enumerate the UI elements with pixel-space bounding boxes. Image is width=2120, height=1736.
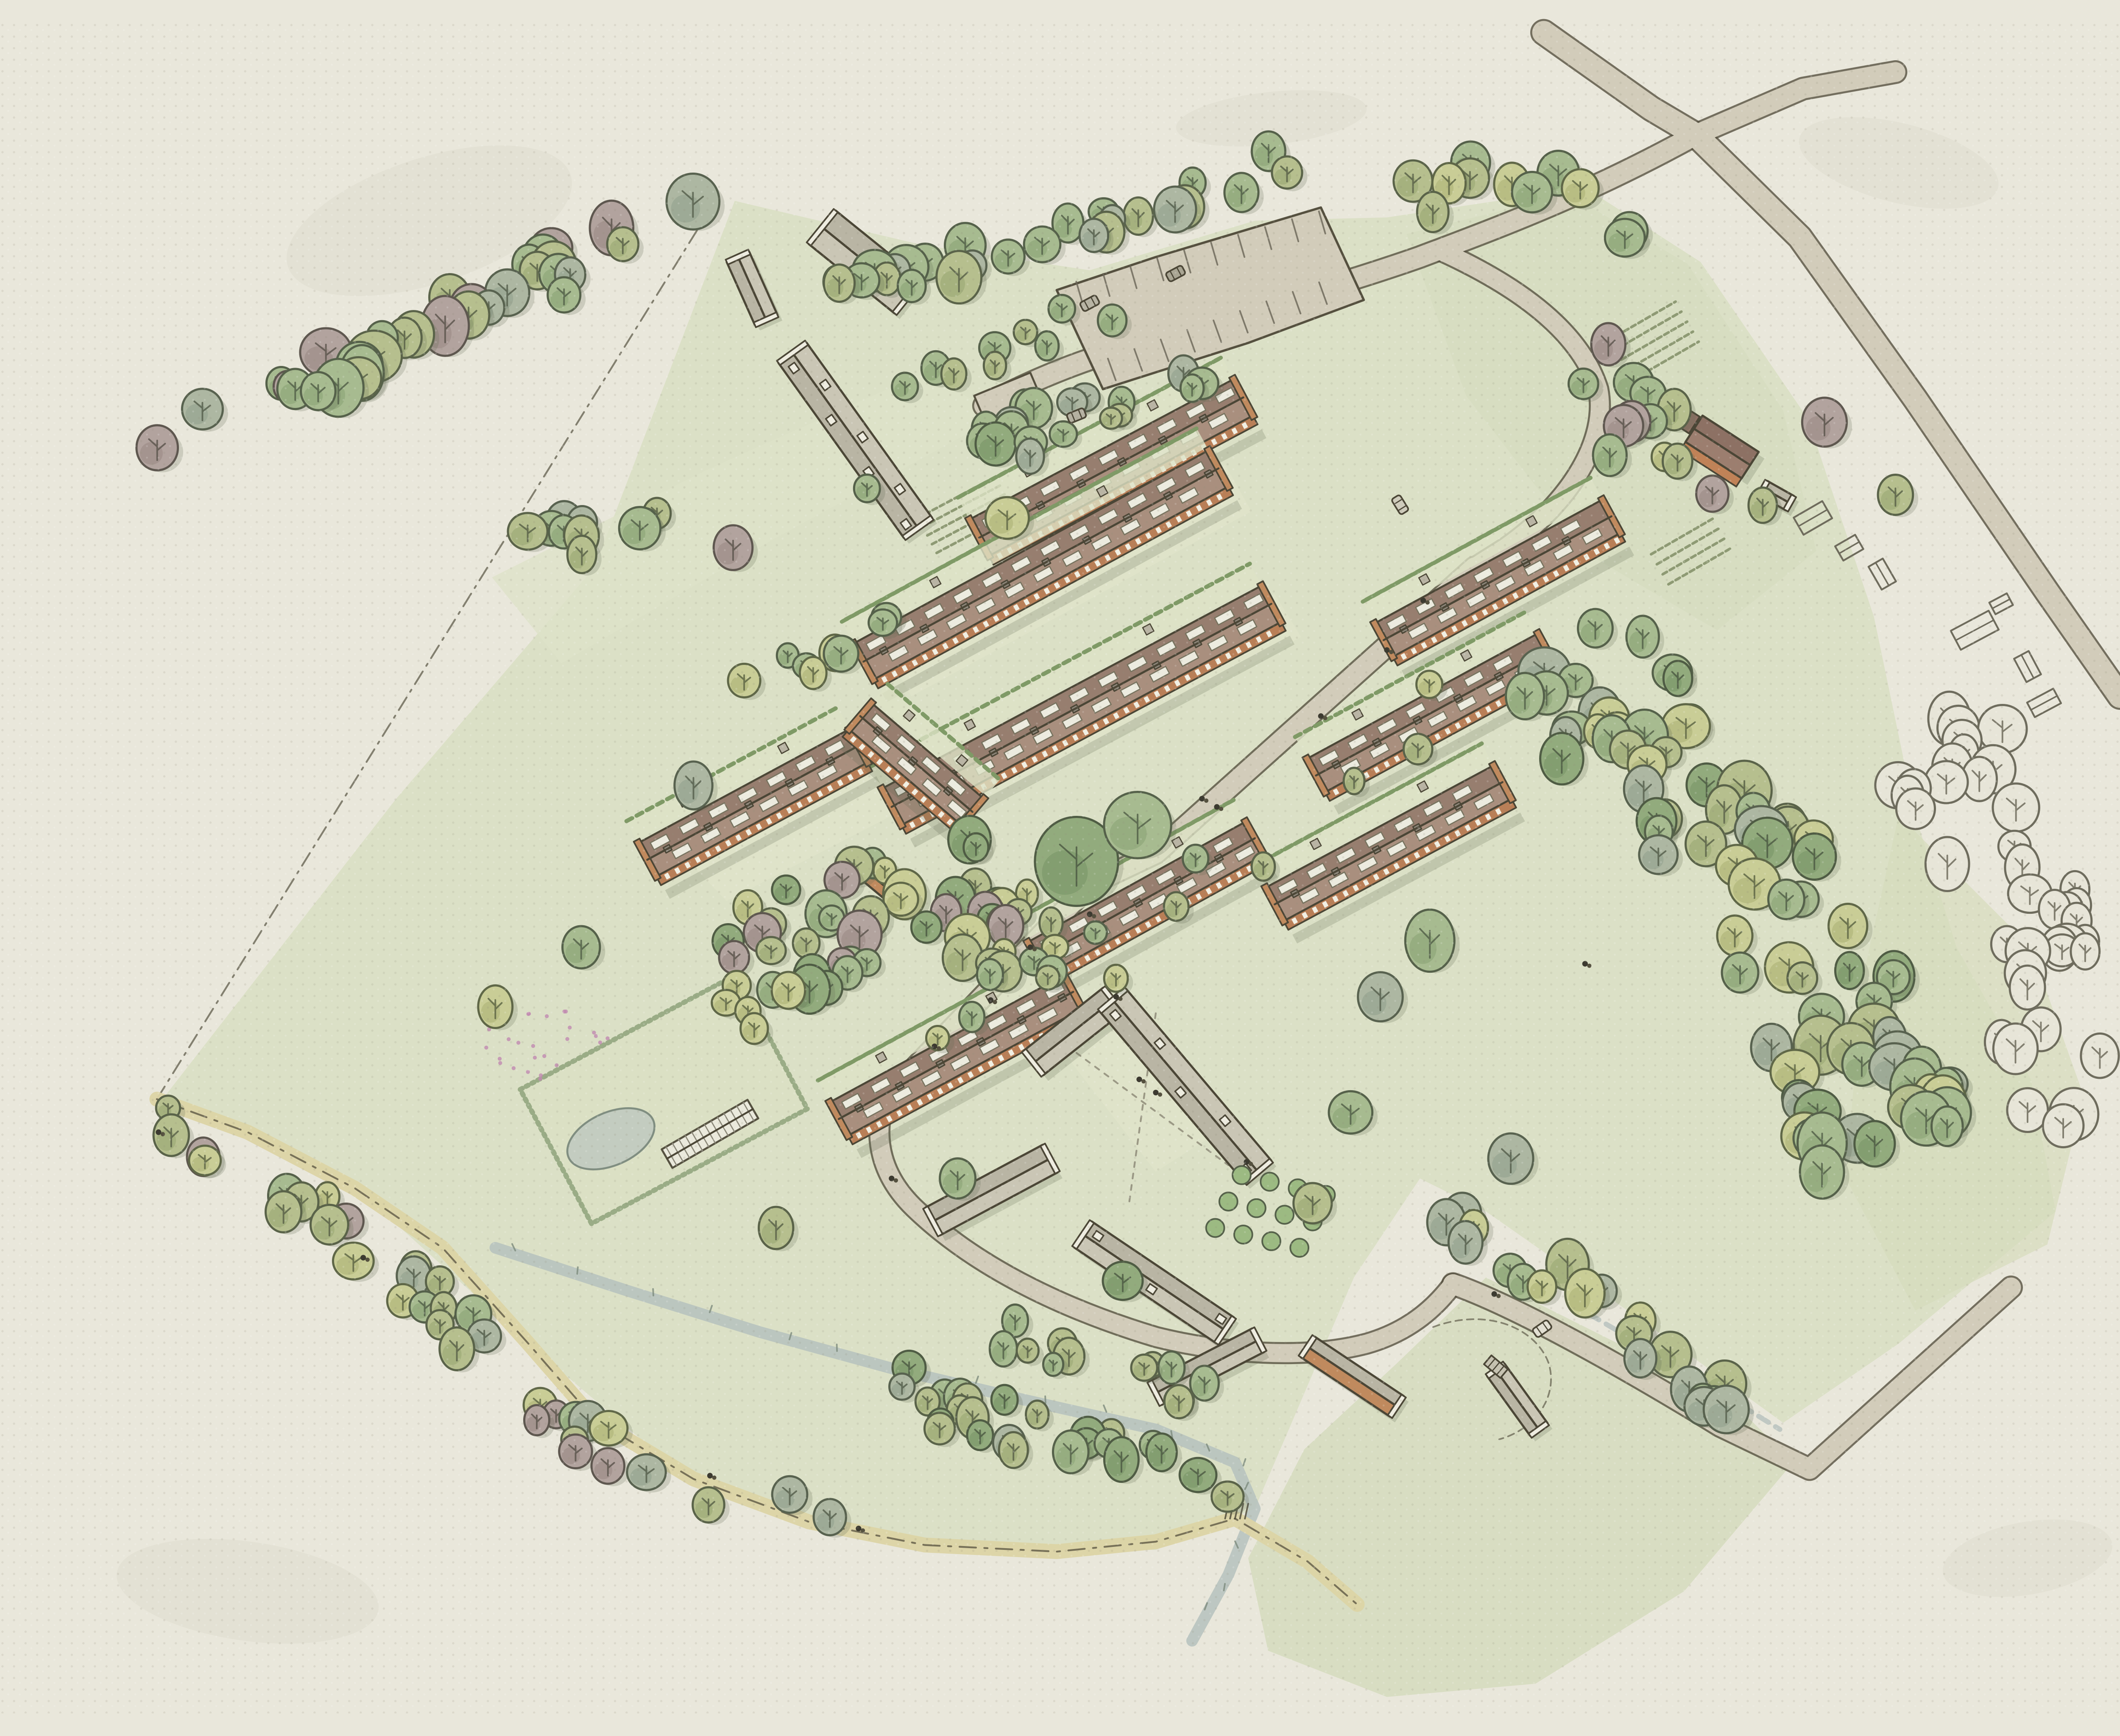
tree-canopy-shade xyxy=(856,485,870,499)
tree-canopy-shade xyxy=(1544,752,1568,778)
tree-canopy-shade xyxy=(918,1398,931,1412)
person-dot xyxy=(1492,1291,1497,1297)
outline-tree xyxy=(1993,784,2039,832)
tree-canopy-shade xyxy=(1254,863,1266,877)
tree-canopy-shade xyxy=(1086,930,1098,941)
tree-canopy-shade xyxy=(550,290,568,308)
tree-canopy-shade xyxy=(821,915,835,927)
tree-canopy-shade xyxy=(816,1513,834,1531)
tree-canopy-shade xyxy=(802,669,817,685)
tree-canopy-shade xyxy=(1018,452,1034,469)
flower-dot xyxy=(498,1057,502,1061)
tree-canopy-shade xyxy=(570,550,586,568)
tree-canopy-shade xyxy=(722,953,738,969)
orchard-tree xyxy=(1261,1172,1279,1191)
person-dot xyxy=(1136,1077,1142,1082)
tree-canopy-shade xyxy=(630,1468,652,1485)
tree-canopy-shade xyxy=(337,1256,359,1275)
tree-canopy-shade xyxy=(995,252,1013,269)
tree-canopy-shade xyxy=(1183,385,1195,398)
tree-canopy-shade xyxy=(979,438,1001,460)
tree-canopy-shade xyxy=(1106,1276,1128,1295)
tree-canopy-shade xyxy=(1806,416,1830,441)
person-dot xyxy=(1214,804,1219,809)
tree-canopy-shade xyxy=(717,542,738,564)
flower-dot xyxy=(531,1044,535,1048)
orchard-tree xyxy=(1247,1199,1266,1217)
tree-canopy-shade xyxy=(1804,1165,1828,1192)
tree-canopy-shade xyxy=(140,442,163,465)
tree-canopy-shade xyxy=(1581,623,1600,642)
flower-dot xyxy=(545,1014,549,1018)
person-dot xyxy=(856,1526,861,1531)
tree-canopy-shade xyxy=(1397,176,1418,197)
tree-canopy-shade xyxy=(186,404,208,424)
tree-canopy-shade xyxy=(1158,204,1181,227)
tree-canopy-shade xyxy=(914,923,930,939)
tree-canopy-shade xyxy=(1297,1198,1318,1219)
tree-canopy-shade xyxy=(961,1013,975,1028)
tree-canopy-shade xyxy=(1751,501,1767,519)
tree-canopy-shade xyxy=(1643,850,1664,869)
tree-canopy-shade xyxy=(1160,1364,1175,1380)
tree-canopy-shade xyxy=(1183,1471,1203,1488)
flower-dot xyxy=(568,1026,572,1030)
tree-canopy-shade xyxy=(979,971,994,986)
person-dot xyxy=(365,1258,370,1262)
flower-dot xyxy=(564,1010,568,1013)
person-dot xyxy=(1199,796,1205,801)
tree-canopy-shade xyxy=(1568,1287,1590,1311)
tree-canopy-shade xyxy=(511,527,533,545)
person-dot xyxy=(1118,996,1122,1001)
masterplan-illustration xyxy=(0,0,2120,1736)
person-dot xyxy=(712,1476,717,1480)
tree-canopy-shade xyxy=(1041,919,1054,934)
tree-canopy-shade xyxy=(1720,930,1740,950)
tree-canopy-shade xyxy=(1832,921,1853,943)
person-dot xyxy=(1087,911,1092,917)
flower-dot xyxy=(539,1073,543,1077)
tree-canopy-shade xyxy=(481,1002,500,1023)
person-dot xyxy=(1582,961,1588,966)
person-dot xyxy=(1384,647,1389,653)
person-dot xyxy=(1153,1090,1158,1095)
tree-canopy-shade xyxy=(993,1396,1008,1411)
person-dot xyxy=(1244,1159,1249,1165)
person-dot xyxy=(993,1000,997,1004)
tree-canopy-shade xyxy=(1596,450,1615,471)
tree-canopy-shade xyxy=(1790,974,1807,990)
person-dot xyxy=(1092,914,1096,918)
tree-canopy-shade xyxy=(1037,342,1050,357)
tree-canopy-shade xyxy=(1227,187,1246,207)
tree-canopy-shade xyxy=(775,986,793,1005)
tree-canopy-shade xyxy=(1052,431,1067,444)
orchard-tree xyxy=(1262,1232,1280,1250)
person-dot xyxy=(1425,600,1430,605)
person-dot xyxy=(889,1175,894,1181)
tree-canopy-shade xyxy=(1666,674,1682,692)
tree-canopy-shade xyxy=(966,844,979,858)
flower-dot xyxy=(507,1037,510,1041)
tree-canopy-shade xyxy=(1038,975,1051,987)
outline-tree xyxy=(1993,1024,2038,1074)
tree-canopy-shade xyxy=(678,779,698,803)
tree-canopy-shade xyxy=(1193,1379,1208,1396)
tree-canopy-shade xyxy=(390,1297,407,1313)
tree-canopy-shade xyxy=(894,383,909,396)
scene-root xyxy=(0,22,2120,1714)
tree-canopy-shade xyxy=(1185,855,1199,869)
tree-canopy-shade xyxy=(1420,207,1437,227)
tree-canopy-shade xyxy=(1110,817,1146,850)
tree-canopy-shade xyxy=(986,362,998,376)
tree-canopy-shade xyxy=(946,952,968,975)
tree-canopy-shade xyxy=(1858,1138,1880,1161)
tree-canopy-shade xyxy=(1018,1348,1030,1359)
tree-canopy-shade xyxy=(762,1222,781,1244)
tree-canopy-shade xyxy=(1107,1454,1126,1476)
tree-canopy-shade xyxy=(876,868,888,880)
tree-canopy-shade xyxy=(1707,1404,1732,1427)
outline-tree xyxy=(2043,1104,2084,1147)
tree-canopy-shade xyxy=(826,279,843,297)
tree-canopy-shade xyxy=(1016,329,1029,341)
outline-tree xyxy=(2010,966,2045,1010)
tree-canopy-shade xyxy=(1001,1446,1017,1463)
person-dot xyxy=(1219,807,1223,811)
tree-canopy-shade xyxy=(1106,975,1119,988)
tree-canopy-shade xyxy=(795,940,809,955)
tree-canopy-shade xyxy=(1045,1362,1056,1373)
tree-canopy-shade xyxy=(429,1321,444,1335)
tree-canopy-shade xyxy=(526,1416,540,1432)
flower-dot xyxy=(484,1046,488,1049)
flower-dot xyxy=(555,1063,558,1067)
tree-canopy-shade xyxy=(1100,316,1116,332)
tree-canopy-shade xyxy=(1133,1365,1148,1378)
person-dot xyxy=(360,1255,366,1260)
person-dot xyxy=(932,1044,937,1049)
tree-canopy-shade xyxy=(562,1447,580,1464)
tree-canopy-shade xyxy=(1451,1237,1470,1258)
tree-canopy-shade xyxy=(1409,933,1437,964)
tree-canopy-shade xyxy=(1608,233,1630,252)
person-dot xyxy=(1323,716,1327,720)
tree-canopy-shade xyxy=(924,364,940,381)
marsh-tick xyxy=(1224,1584,1225,1591)
tree-canopy-shade xyxy=(1406,745,1422,761)
person-dot xyxy=(161,1132,165,1136)
outline-tree xyxy=(2007,1088,2048,1132)
tree-canopy-shade xyxy=(1255,146,1273,166)
tree-canopy-shade xyxy=(1530,1283,1546,1299)
flower-dot xyxy=(526,1070,530,1074)
person-dot xyxy=(937,1046,941,1050)
tree-canopy-shade xyxy=(759,947,775,961)
tree-canopy-shade xyxy=(1056,1446,1076,1468)
tree-canopy-shade xyxy=(775,1490,794,1508)
tree-canopy-shade xyxy=(1565,184,1585,203)
person-dot xyxy=(1032,947,1037,952)
tree-canopy-shade xyxy=(1362,991,1386,1015)
tree-canopy-shade xyxy=(1515,187,1537,207)
marsh-tick xyxy=(837,1345,837,1351)
tree-canopy-shade xyxy=(623,523,646,544)
tree-canopy-shade xyxy=(1214,1493,1232,1508)
tree-canopy-shade xyxy=(1838,966,1853,985)
tree-canopy-shade xyxy=(1333,1107,1356,1128)
tree-canopy-shade xyxy=(1022,958,1038,971)
flower-dot xyxy=(605,1036,609,1040)
tree-canopy-shade xyxy=(1846,1059,1867,1080)
orchard-tree xyxy=(1206,1219,1225,1237)
tree-canopy-shade xyxy=(1594,339,1613,360)
tree-canopy-shade xyxy=(827,649,846,667)
tree-canopy-shade xyxy=(1166,903,1180,917)
tree-canopy-shade xyxy=(1102,416,1114,426)
tree-canopy-shade xyxy=(1689,838,1712,861)
person-dot xyxy=(894,1178,898,1183)
tree-canopy-shade xyxy=(1665,457,1681,474)
flower-dot xyxy=(542,1054,546,1058)
tree-canopy-shade xyxy=(714,999,730,1012)
tree-canopy-shade xyxy=(1051,305,1065,319)
tree-canopy-shade xyxy=(774,886,789,901)
person-dot xyxy=(1204,798,1208,803)
flower-dot xyxy=(527,1012,531,1016)
tree-canopy-shade xyxy=(314,1220,335,1239)
tree-canopy-shade xyxy=(927,1425,944,1440)
outline-tree xyxy=(2071,933,2100,969)
tree-canopy-shade xyxy=(192,1157,209,1172)
tree-canopy-shade xyxy=(1275,168,1291,184)
tree-canopy-shade xyxy=(1771,894,1791,914)
tree-canopy-shade xyxy=(304,386,323,405)
marsh-tick xyxy=(1045,1396,1046,1403)
tree-canopy-shade xyxy=(1167,1398,1183,1414)
person-dot xyxy=(1027,944,1033,950)
tree-canopy-shade xyxy=(1725,968,1745,988)
tree-canopy-shade xyxy=(940,271,965,297)
flower-dot xyxy=(533,1056,537,1060)
tree-canopy-shade xyxy=(900,282,915,298)
flower-dot xyxy=(516,1041,520,1044)
flower-dot xyxy=(598,1041,602,1044)
flower-dot xyxy=(594,1034,598,1038)
person-dot xyxy=(1318,713,1324,719)
outline-tree xyxy=(1896,788,1935,829)
person-dot xyxy=(1587,963,1591,968)
tree-canopy-shade xyxy=(671,195,700,223)
orchard-tree xyxy=(1219,1192,1238,1211)
tree-canopy-shade xyxy=(443,1343,462,1365)
tree-canopy-shade xyxy=(593,1424,614,1441)
marsh-tick xyxy=(653,1289,653,1296)
tree-canopy-shade xyxy=(1028,1411,1040,1425)
flower-dot xyxy=(565,1037,569,1041)
person-dot xyxy=(1420,598,1426,603)
marsh-tick xyxy=(577,1267,577,1274)
orchard-tree xyxy=(1233,1166,1251,1184)
tree-canopy-shade xyxy=(1082,231,1098,248)
person-dot xyxy=(1141,1079,1146,1083)
outline-tree xyxy=(2081,1033,2119,1078)
tree-canopy-shade xyxy=(779,653,791,665)
tree-canopy-shade xyxy=(1934,1121,1951,1141)
tree-canopy-shade xyxy=(1042,850,1088,895)
tree-canopy-shade xyxy=(989,513,1013,533)
tree-canopy-shade xyxy=(1699,489,1717,508)
orchard-tree xyxy=(1234,1225,1252,1244)
flower-dot xyxy=(592,1031,596,1035)
tree-canopy-shade xyxy=(610,240,627,257)
tree-canopy-shade xyxy=(594,1462,613,1479)
tree-canopy-shade xyxy=(280,384,300,404)
tree-canopy-shade xyxy=(1492,1152,1517,1177)
person-dot xyxy=(1158,1092,1162,1097)
tree-canopy-shade xyxy=(1419,681,1433,695)
flower-dot xyxy=(498,1061,502,1065)
tree-canopy-shade xyxy=(1796,851,1820,874)
person-dot xyxy=(1113,994,1119,999)
tree-canopy-shade xyxy=(269,1207,288,1227)
tree-canopy-shade xyxy=(412,1303,429,1319)
tree-canopy-shade xyxy=(695,1501,713,1518)
tree-canopy-shade xyxy=(1509,690,1530,714)
tree-canopy-shade xyxy=(731,676,748,693)
tree-canopy-shade xyxy=(1345,778,1357,791)
outline-tree xyxy=(1925,837,1969,891)
tree-canopy-shade xyxy=(566,942,586,963)
tree-canopy-shade xyxy=(1027,240,1047,258)
person-dot xyxy=(1389,650,1393,654)
person-dot xyxy=(1496,1294,1501,1298)
tree-canopy-shade xyxy=(1881,490,1900,510)
flower-dot xyxy=(538,1077,542,1080)
flower-dot xyxy=(512,1066,516,1070)
tree-canopy-shade xyxy=(943,1173,962,1193)
tree-canopy-shade xyxy=(1510,1277,1527,1295)
tree-canopy-shade xyxy=(1571,380,1587,395)
person-dot xyxy=(861,1528,865,1532)
tree-canopy-shade xyxy=(1733,878,1761,903)
tree-canopy-shade xyxy=(871,620,887,633)
tree-canopy-shade xyxy=(743,1024,758,1040)
tree-canopy-shade xyxy=(428,1278,444,1293)
tree-canopy-shade xyxy=(1149,1448,1166,1466)
tree-canopy-shade xyxy=(892,1383,906,1396)
person-dot xyxy=(156,1129,161,1135)
orchard-tree xyxy=(1275,1206,1294,1224)
orchard-tree xyxy=(1290,1239,1308,1257)
person-dot xyxy=(988,997,993,1003)
person-dot xyxy=(1249,1162,1253,1166)
tree-canopy-shade xyxy=(1627,1354,1645,1373)
tree-canopy-shade xyxy=(992,1345,1007,1362)
tree-canopy-shade xyxy=(1905,1112,1933,1139)
tree-canopy-shade xyxy=(943,370,957,386)
tree-canopy-shade xyxy=(1629,631,1647,652)
masterplan-svg xyxy=(0,0,2120,1736)
person-dot xyxy=(707,1473,713,1478)
tree-canopy-shade xyxy=(969,1432,984,1446)
